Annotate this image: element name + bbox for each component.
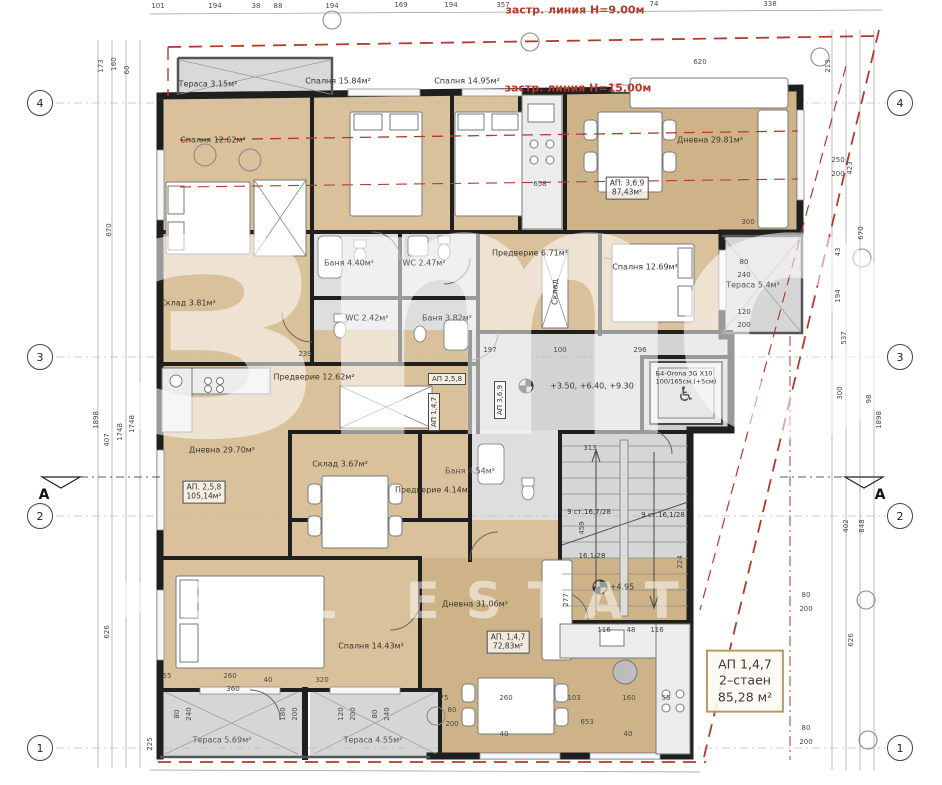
apartment-258-area: 105,14м²	[187, 492, 222, 501]
dim-label: 38	[252, 2, 261, 10]
dim-label: 80	[740, 258, 749, 266]
apartment-369-id: АП. 3,6,9	[610, 179, 645, 188]
dim-label: 402	[842, 519, 850, 532]
dim-label: 225	[146, 737, 154, 750]
room-label-wc-2-47: WC 2.47м²	[402, 259, 445, 268]
plan-drawing	[0, 0, 942, 785]
dim-label: 200	[445, 720, 458, 728]
dim-label: 194	[208, 2, 221, 10]
dim-label: 338	[763, 0, 776, 8]
dim-label: 213	[824, 59, 832, 72]
dim-label: 98	[865, 395, 873, 404]
dim-label: 194	[444, 1, 457, 9]
dim-label: 260	[499, 694, 512, 702]
dim-label: 80	[802, 591, 811, 599]
apartment-369-area: 87,43м²	[610, 188, 645, 197]
dim-label: 60	[123, 66, 131, 75]
dim-label: 200	[799, 738, 812, 746]
room-label-hall-4-14: Предверие 4.14м²	[395, 486, 471, 495]
dim-label: 423	[846, 161, 854, 174]
dim-label: 43	[834, 248, 842, 257]
apartment-tag-258: АП 2,5,8	[428, 373, 466, 385]
dim-label: 48	[627, 626, 636, 634]
room-label-hall-6-71: Предверие 6.71м²	[492, 249, 568, 258]
floor-plan-canvas: зmо REAL ESTATE застр. линия Н=9.00м зас…	[0, 0, 942, 785]
dim-label: 80	[448, 706, 457, 714]
apartment-area-box-147: АП. 1,4,7 72,83м²	[487, 631, 530, 654]
dim-label: 120	[737, 308, 750, 316]
section-label-right: A	[875, 487, 886, 503]
dim-label: 160	[622, 694, 635, 702]
stair-run-right-label: 9 ст.16,1/28	[641, 511, 685, 519]
dim-label: 40	[500, 730, 509, 738]
room-label-bedroom-14-43: Спалня 14.43м²	[338, 642, 404, 651]
dim-label: 407	[103, 433, 111, 446]
room-label-bath-4-54: Баня 4.54м²	[445, 467, 495, 476]
dim-label: 101	[151, 2, 164, 10]
dim-label: 653	[580, 718, 593, 726]
dim-label: 169	[394, 1, 407, 9]
dim-label: 197	[483, 346, 496, 354]
elevator-model: Б4-Orona 3G X10	[656, 370, 717, 378]
dim-label: 260	[223, 672, 236, 680]
room-label-living-29-81: Дневна 29.81м²	[677, 136, 743, 145]
apartment-147-area: 72,83м²	[491, 642, 526, 651]
grid-bubble-left-3: 3	[27, 344, 53, 370]
grid-bubble-right-4: 4	[887, 90, 913, 116]
dim-label: 75	[440, 694, 449, 702]
dim-label: 626	[103, 625, 111, 638]
info-box-id: АП 1,4,7	[718, 657, 772, 673]
apartment-area-box-258: АП. 2,5,8 105,14м²	[183, 481, 226, 504]
building-line-9m-label: застр. линия Н=9.00м	[505, 4, 644, 17]
apartment-area-box-369: АП. 3,6,9 87,43м²	[606, 177, 649, 200]
room-label-storage-3-67: Склад 3.67м²	[312, 460, 368, 469]
dim-label: 296	[633, 346, 646, 354]
dim-label: 360	[226, 685, 239, 693]
info-box-area: 85,28 м²	[718, 689, 772, 705]
room-label-living-29-70: Дневна 29.70м²	[189, 446, 255, 455]
apartment-info-box: АП 1,4,7 2–стаен 85,28 м²	[706, 650, 784, 713]
room-label-terrace-top-left: Тераса 3.15м²	[179, 80, 238, 89]
dim-label: 200	[831, 170, 844, 178]
stair-dim-label: 459	[578, 521, 586, 534]
dim-label: 848	[858, 519, 866, 532]
room-label-storage-3-81: Склад 3.81м²	[160, 299, 216, 308]
dim-label: 80	[173, 710, 181, 719]
grid-bubble-right-2: 2	[887, 503, 913, 529]
dim-label: 120	[337, 707, 345, 720]
room-label-bedroom-12-62: Спалня 12.62м²	[180, 136, 246, 145]
dim-label: 173	[97, 59, 105, 72]
dim-label: 239	[298, 350, 311, 358]
dim-label: 200	[291, 707, 299, 720]
grid-bubble-right-1: 1	[887, 735, 913, 761]
dim-label: 180	[279, 707, 287, 720]
apartment-258-id: АП. 2,5,8	[187, 483, 222, 492]
stair-run-mid-label: 16,1/28	[579, 552, 606, 560]
dim-label: 224	[676, 555, 684, 568]
dim-label: 55	[163, 672, 172, 680]
dim-label: 670	[857, 226, 865, 239]
dim-label: 300	[741, 218, 754, 226]
dim-label: 194	[834, 289, 842, 302]
room-label-wc-2-42: WC 2.42м²	[345, 314, 388, 323]
room-label-terrace-5-69: Тераса 5.69м²	[193, 736, 252, 745]
dim-label: 357	[496, 1, 509, 9]
dim-label: 250	[831, 156, 844, 164]
room-label-bedroom-12-69: Спалня 12.69м²	[612, 263, 678, 272]
grid-bubble-left-4: 4	[27, 90, 53, 116]
room-label-bath-3-82: Баня 3.82м²	[422, 314, 472, 323]
grid-bubble-right-3: 3	[887, 344, 913, 370]
dim-label: 240	[737, 271, 750, 279]
dim-label: 116	[650, 626, 663, 634]
dim-label: 200	[799, 605, 812, 613]
dim-label: 100	[553, 346, 566, 354]
dim-label: 194	[325, 2, 338, 10]
room-label-terrace-right: Тераса 5.4м²	[726, 281, 780, 290]
dim-label: 80	[371, 710, 379, 719]
dim-label: 300	[836, 386, 844, 399]
level-annotation: +3.50, +6.40, +9.30	[550, 382, 634, 391]
dim-label: 277	[562, 593, 570, 606]
dim-label: 160	[110, 57, 118, 70]
room-label-bedroom-15-84: Спалня 15.84м²	[305, 77, 371, 86]
dim-label: 537	[840, 331, 848, 344]
grid-bubble-left-1: 1	[27, 735, 53, 761]
dim-label: 313	[583, 444, 596, 452]
dim-label: 40	[624, 730, 633, 738]
room-label-bath-4-40: Баня 4.40м²	[324, 259, 374, 268]
dim-label: 670	[105, 223, 113, 236]
dim-label: 74	[650, 0, 659, 8]
dim-label: 620	[693, 58, 706, 66]
room-label-terrace-4-55: Тераса 4.55м²	[344, 736, 403, 745]
dim-label: 658	[533, 180, 546, 188]
dim-label: 240	[185, 707, 193, 720]
dim-label: 1898	[92, 411, 100, 429]
dim-label: 55	[662, 694, 671, 702]
wheelchair-icon: ♿	[677, 382, 695, 406]
dim-label: 80	[802, 724, 811, 732]
stair-run-left-label: 9 ст.16,7/28	[567, 508, 611, 516]
room-label-hall-12-62: Предверие 12.62м²	[273, 373, 354, 382]
info-box-type: 2–стаен	[718, 673, 772, 689]
dim-label: 320	[315, 676, 328, 684]
apartment-147-id: АП. 1,4,7	[491, 633, 526, 642]
room-label-closet: Склад	[551, 279, 560, 305]
room-label-bedroom-14-95: Спалня 14.95м²	[434, 77, 500, 86]
stair-level-annotation: +4.95	[610, 583, 635, 592]
dim-label: 626	[847, 633, 855, 646]
dim-label: 1748	[128, 415, 136, 433]
dim-label: 103	[567, 694, 580, 702]
dim-label: 200	[349, 707, 357, 720]
dim-label: 200	[737, 321, 750, 329]
dim-label: 1898	[875, 411, 883, 429]
dim-label: 1748	[116, 423, 124, 441]
apartment-tag-147: АП 1,4,7	[428, 393, 440, 431]
grid-bubble-left-2: 2	[27, 503, 53, 529]
room-label-living-31-06: Дневна 31.06м²	[442, 600, 508, 609]
dim-label: 240	[383, 707, 391, 720]
dim-label: 40	[264, 676, 273, 684]
dim-label: 88	[274, 2, 283, 10]
apartment-tag-369: АП 3,6,9	[494, 381, 506, 419]
section-label-left: A	[39, 487, 50, 503]
building-line-15m-label: застр. линия Н=15.00м	[505, 82, 652, 95]
dim-label: 116	[597, 626, 610, 634]
